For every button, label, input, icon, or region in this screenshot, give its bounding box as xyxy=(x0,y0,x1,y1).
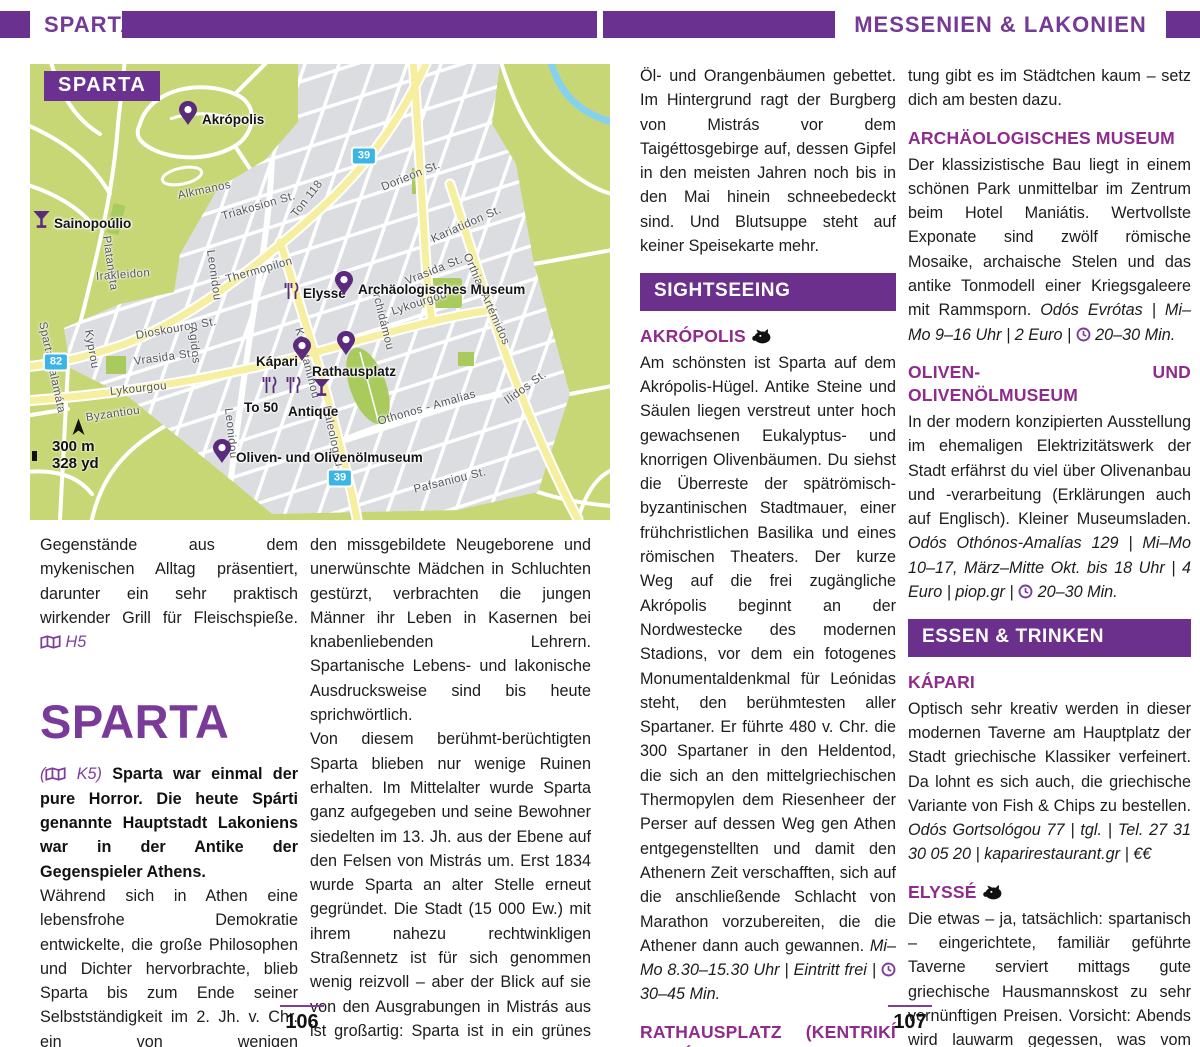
entry-paragraph: Am schönsten ist Sparta auf dem Akrópoli… xyxy=(640,351,896,1007)
right-page-column-1: Öl- und Orangenbäumen gebettet. Im Hinte… xyxy=(640,64,896,1047)
header-left-block xyxy=(0,11,30,38)
entry-paragraph: Die etwas – ja, tatsächlich: spartanisch… xyxy=(908,907,1191,1047)
header-right-title: MESSENIEN & LAKONIEN xyxy=(843,12,1158,38)
body-paragraph: den missgebildete Neugeborene und unerwü… xyxy=(310,533,591,727)
page-number-right: 107 xyxy=(880,1005,940,1034)
text-run: H5 xyxy=(61,633,86,651)
poi-label: Antique xyxy=(288,404,338,419)
map-reference-icon xyxy=(45,767,66,781)
header-left-bar xyxy=(122,11,597,38)
map-pin-icon xyxy=(178,100,198,126)
poi-label: Archäologisches Museum xyxy=(358,282,525,297)
page-number-rule xyxy=(280,1005,324,1007)
bar-martini-icon xyxy=(32,210,51,230)
text-run: In der modern konzipierten Ausstellung i… xyxy=(908,413,1191,528)
header-right-bar xyxy=(603,11,835,38)
museum-continuation-paragraph: Gegenstände aus dem mykenischen Alltag p… xyxy=(40,533,298,654)
text-run: Am schönsten ist Sparta auf dem Akrópoli… xyxy=(640,354,896,955)
text-run: Optisch sehr kreativ werden in dieser mo… xyxy=(908,700,1191,815)
entry-paragraph: In der modern konzipierten Ausstellung i… xyxy=(908,410,1191,604)
map-scale: 300 m 328 yd xyxy=(34,438,154,472)
text-run: 20–30 Min. xyxy=(1091,326,1176,344)
insider-tip-pig-icon xyxy=(751,329,772,344)
body-paragraph: Öl- und Orangenbäumen gebettet. Im Hinte… xyxy=(640,64,896,258)
poi-label: To 50 xyxy=(244,400,278,415)
map-title: SPARTA xyxy=(44,71,160,101)
restaurant-cutlery-icon xyxy=(260,376,277,394)
bar-martini-icon xyxy=(312,378,331,398)
road-number-badge: 82 xyxy=(43,353,69,372)
insider-tip-pig-icon xyxy=(982,885,1003,900)
page-number-left: 106 xyxy=(272,1005,332,1034)
entry-heading-museum: ARCHÄOLOGISCHES MUSEUM xyxy=(908,127,1191,150)
page-number-value: 107 xyxy=(893,1011,926,1033)
map-pin-icon xyxy=(334,270,354,296)
page-number-value: 106 xyxy=(285,1011,318,1033)
entry-paragraph: Optisch sehr kreativ werden in dieser mo… xyxy=(908,697,1191,867)
text-run: Odós Gortsológou 77 | tgl. | Tel. 27 31 … xyxy=(908,821,1191,863)
restaurant-cutlery-icon xyxy=(282,282,299,300)
left-page-column-1: Gegenstände aus dem mykenischen Alltag p… xyxy=(40,533,298,1047)
entry-heading-rathausplatz: RATHAUSPLATZ (KENTRIKÍ PLATÍA) xyxy=(640,1021,896,1047)
entry-paragraph: Der klassizistische Bau liegt in einem s… xyxy=(908,153,1191,347)
body-paragraph: Während sich in Athen eine lebensfrohe D… xyxy=(40,884,298,1047)
text-run: ELYSSÉ xyxy=(908,882,982,902)
text-run: 20–30 Min. xyxy=(1033,583,1118,601)
entry-heading-elysse: ELYSSÉ xyxy=(908,881,1191,904)
map-reference-icon xyxy=(40,635,61,649)
poi-label: Akrópolis xyxy=(202,112,264,127)
page-number-rule xyxy=(888,1005,932,1007)
scale-metric: 300 m xyxy=(52,438,154,455)
poi-label: Oliven- und Olivenölmuseum xyxy=(236,450,423,465)
entry-heading-kapari: KÁPARI xyxy=(908,671,1191,694)
left-page-column-2: den missgebildete Neugeborene und unerwü… xyxy=(310,533,591,1047)
lead-paragraph: ( K5) Sparta war einmal der pure Horror.… xyxy=(40,762,298,883)
guidebook-spread: SPARTA MESSENIEN & LAKONIEN xyxy=(0,0,1200,1047)
body-paragraph: tung gibt es im Städtchen kaum – setz di… xyxy=(908,64,1191,113)
text-run: K5) xyxy=(66,765,112,783)
section-header-sightseeing: SIGHTSEEING xyxy=(640,273,896,310)
poi-label: Rathausplatz xyxy=(312,364,396,379)
entry-heading-olivenmuseum: OLIVEN- UND OLIVENÖLMUSEUM xyxy=(908,361,1191,407)
right-page-column-2: tung gibt es im Städtchen kaum – setz di… xyxy=(908,64,1191,1047)
duration-clock-icon xyxy=(1018,584,1033,599)
poi-label: Sainopoúlio xyxy=(54,216,131,231)
section-header-essen-trinken: ESSEN & TRINKEN xyxy=(908,619,1191,656)
restaurant-cutlery-icon xyxy=(284,376,301,394)
header-right-block xyxy=(1166,11,1200,38)
duration-clock-icon xyxy=(881,962,896,977)
road-number-badge: 39 xyxy=(327,469,353,488)
poi-label: Kápari xyxy=(256,354,298,369)
map-pin-icon xyxy=(212,438,232,464)
text-run: AKRÓPOLIS xyxy=(640,326,751,346)
city-map: SPARTA AlkmanosTriakosion St.PlatanistaL… xyxy=(30,64,610,520)
road-number-badge: 39 xyxy=(351,147,377,166)
text-run: Der klassizistische Bau liegt in einem s… xyxy=(908,156,1191,320)
map-pin-icon xyxy=(336,330,356,356)
text-run: Gegenstände aus dem mykenischen Alltag p… xyxy=(40,536,298,627)
body-paragraph: Von diesem berühmt-berüchtigten Sparta b… xyxy=(310,727,591,1047)
scale-imperial: 328 yd xyxy=(52,455,154,472)
chapter-title: SPARTA xyxy=(40,698,298,745)
text-run: 30–45 Min. xyxy=(640,985,720,1003)
entry-heading-akropolis: AKRÓPOLIS xyxy=(640,325,896,348)
duration-clock-icon xyxy=(1076,327,1091,342)
